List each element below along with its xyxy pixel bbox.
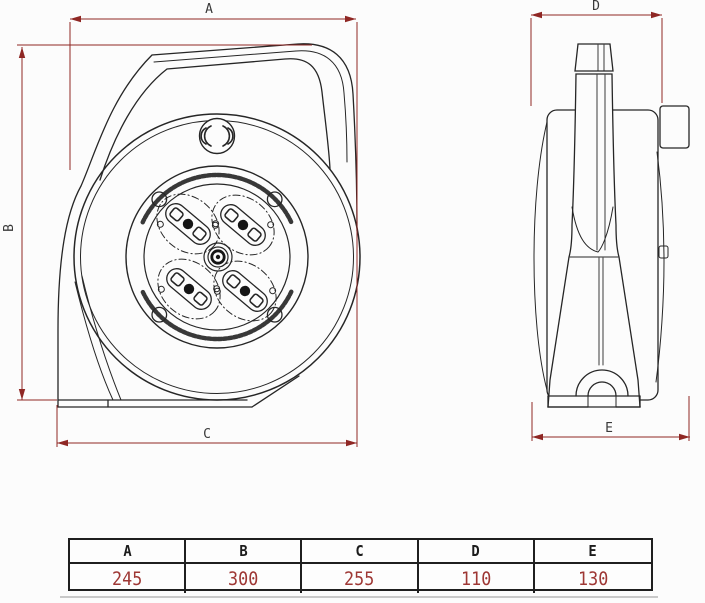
dimension-C-label: C (203, 427, 211, 442)
front-view (58, 44, 360, 407)
side-socket-box (660, 106, 689, 148)
stand-brace-lines (75, 276, 121, 400)
side-handle-column (548, 74, 640, 407)
dimension-A-label: A (205, 2, 213, 17)
table-value-cell: 130 (535, 564, 651, 593)
table-header-cell: C (302, 540, 418, 564)
left-flange-curve (534, 122, 547, 390)
technical-drawing-page: A B C (0, 0, 705, 603)
table-header-cell: B (186, 540, 302, 564)
dimension-C: C (57, 405, 357, 447)
table-value-cell: 110 (419, 564, 535, 593)
table-header-cell: A (70, 540, 186, 564)
reel-silhouette (58, 44, 357, 407)
table-value-cell: 300 (186, 564, 302, 593)
table-value-cell: 255 (302, 564, 418, 593)
side-view (534, 44, 689, 407)
table-header-cell: E (535, 540, 651, 564)
cable-guide-button (200, 119, 235, 154)
dimension-table: A B C D E 245 300 255 110 130 (68, 538, 653, 591)
side-handle-cap (575, 44, 613, 71)
drawing-area: A B C (0, 0, 705, 530)
right-flange-curve (656, 152, 664, 382)
dimension-D-label: D (592, 0, 600, 14)
table-underline (60, 596, 658, 598)
front-base (58, 276, 299, 407)
table-value-cell: 245 (70, 564, 186, 593)
table-header-cell: D (419, 540, 535, 564)
dimension-B-label: B (2, 224, 17, 232)
dimension-E-label: E (605, 421, 613, 436)
